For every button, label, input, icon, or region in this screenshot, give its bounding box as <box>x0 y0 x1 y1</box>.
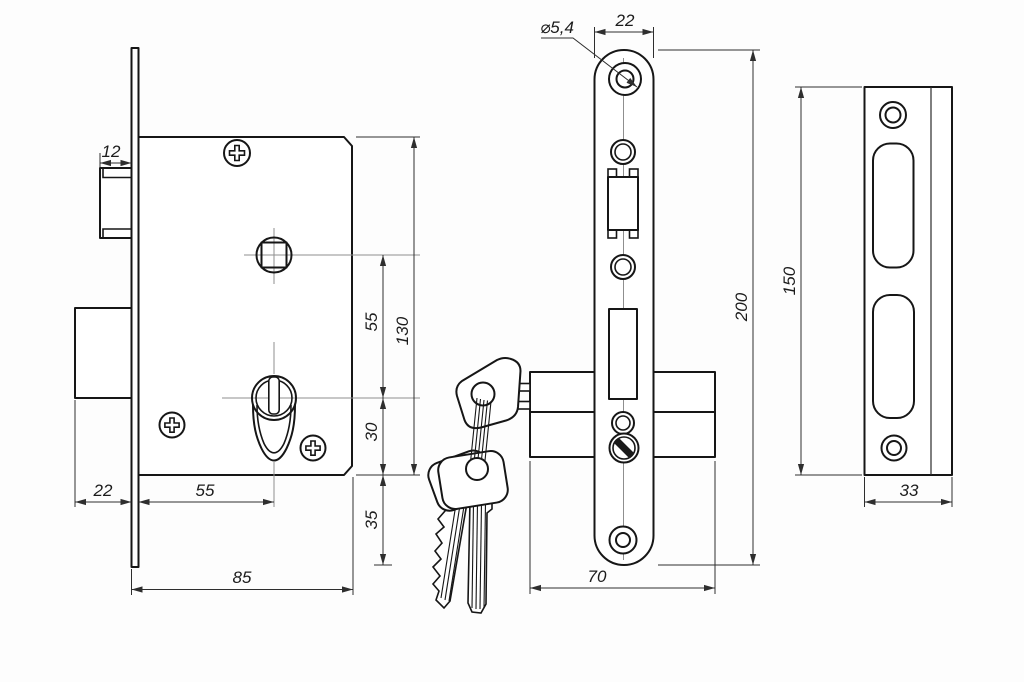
dim-33: 33 <box>865 477 953 507</box>
strike-plate-view: 150 33 <box>780 87 952 507</box>
slotted-screw <box>610 434 639 463</box>
front-view: ⌀5,4 22 200 70 <box>425 11 760 613</box>
dim-85: 85 <box>132 477 354 595</box>
dim-label-200: 200 <box>732 292 751 322</box>
dim-30: 30 <box>362 398 383 475</box>
latch-bolt <box>100 168 132 238</box>
dim-label-35: 35 <box>362 510 381 529</box>
side-view: 12 55 30 35 130 22 <box>75 48 420 595</box>
key-back-shaft <box>433 500 467 608</box>
dim-label-130: 130 <box>393 316 412 345</box>
deadbolt-front <box>609 309 637 399</box>
drawing-canvas: 12 55 30 35 130 22 <box>0 0 1024 682</box>
technical-drawing: 12 55 30 35 130 22 <box>0 0 1024 682</box>
small-hole-1 <box>611 140 635 164</box>
dim-55-vertical: 55 <box>362 255 383 398</box>
dim-22-side: 22 <box>75 400 132 507</box>
inserted-key <box>456 358 520 428</box>
dim-label-22-front: 22 <box>615 11 635 30</box>
dim-200: 200 <box>658 50 760 565</box>
lock-body <box>139 137 353 475</box>
dim-label-70: 70 <box>588 567 607 586</box>
top-screw-hole <box>609 63 641 95</box>
key-ring-ball <box>466 458 488 480</box>
hanging-keys <box>425 398 510 613</box>
dim-label-33: 33 <box>900 481 919 500</box>
latch-front <box>608 169 638 238</box>
dim-150: 150 <box>780 87 862 475</box>
dim-label-85: 85 <box>233 568 252 587</box>
dim-label-12: 12 <box>102 142 121 161</box>
dim-label-150: 150 <box>780 266 799 295</box>
dim-label-22-side: 22 <box>93 481 113 500</box>
dim-35: 35 <box>362 475 392 565</box>
keyway-slot <box>269 377 279 414</box>
strike-hole-top <box>880 102 906 128</box>
small-hole-2 <box>611 255 635 279</box>
key-front-shaft <box>468 500 492 613</box>
dim-55-horizontal: 55 <box>139 481 275 502</box>
dim-label-30: 30 <box>362 422 381 441</box>
bottom-screw-hole <box>610 527 637 554</box>
dim-label-dia54: ⌀5,4 <box>540 18 574 37</box>
dim-label-55h: 55 <box>196 481 215 500</box>
dim-12: 12 <box>100 142 132 167</box>
deadbolt <box>75 308 132 398</box>
dim-label-55v: 55 <box>362 312 381 331</box>
strike-hole-bottom <box>882 436 907 461</box>
strike-plate <box>865 87 953 475</box>
small-hole-3 <box>612 412 634 434</box>
faceplate-side <box>132 48 139 567</box>
